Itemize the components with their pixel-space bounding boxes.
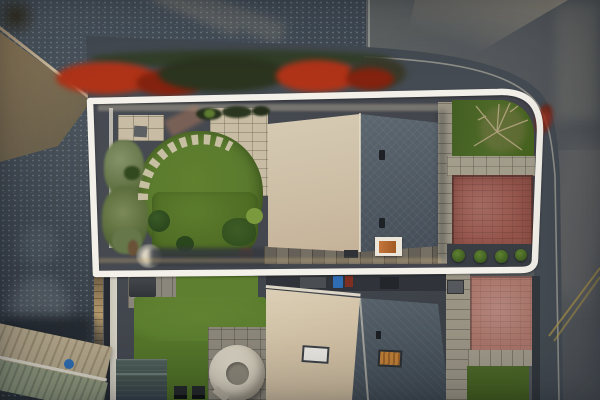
storage-box [380, 277, 399, 289]
main-house-roof-sunlit-face [268, 112, 360, 252]
roof-vent [379, 218, 385, 228]
shrub [222, 106, 252, 118]
red-hedge [50, 50, 405, 102]
paver-band [468, 350, 532, 366]
hedge-green-clump [158, 56, 288, 92]
paver-block [300, 277, 326, 288]
storage-bin [129, 277, 156, 297]
grass-verge [467, 366, 529, 400]
sunlight-patch [556, 0, 600, 120]
doorstep [344, 250, 358, 258]
garden-shed [116, 359, 167, 400]
neighbour-roof-sunlit-face [266, 286, 360, 400]
pink-block-driveway [470, 276, 534, 352]
timber-fence [94, 274, 103, 348]
dark-shrub [124, 166, 140, 180]
blue-barrel [64, 359, 74, 369]
shrub-border-top [194, 104, 274, 122]
skylight [301, 345, 329, 364]
round-bush [148, 210, 170, 232]
paver-band-mid [447, 156, 535, 176]
shed-ridge [116, 373, 167, 375]
bare-tree-canopy [480, 106, 526, 152]
roof-vent [376, 331, 381, 339]
bright-bush [246, 208, 263, 224]
mulch-edge [532, 276, 540, 400]
gravel-light-patch [18, 226, 58, 266]
round-shrub [495, 250, 508, 263]
round-shrub [452, 249, 465, 262]
square-planter [192, 386, 205, 399]
round-shrub [515, 249, 527, 261]
sofa-table [226, 362, 249, 385]
roof-ridge [359, 113, 361, 252]
red-bin [345, 276, 353, 287]
mulch-strip [150, 248, 270, 266]
bright-shrub [204, 109, 215, 118]
utility-box [447, 280, 464, 294]
sunlit-wall-edge [98, 258, 442, 263]
skylight-glowing [378, 349, 403, 367]
hedge-red-clump [346, 68, 394, 90]
aerial-photo [0, 0, 600, 400]
shrub [252, 106, 270, 116]
chimney-flue [379, 241, 396, 253]
neighbour-lawn-upper [176, 276, 258, 299]
blue-bin [333, 276, 343, 288]
house-shadow [438, 110, 446, 260]
roof-vent [379, 150, 385, 160]
red-block-driveway [452, 175, 533, 251]
square-planter [174, 386, 187, 399]
main-house-roof-shaded-face [360, 112, 440, 252]
round-shrub [474, 250, 487, 263]
